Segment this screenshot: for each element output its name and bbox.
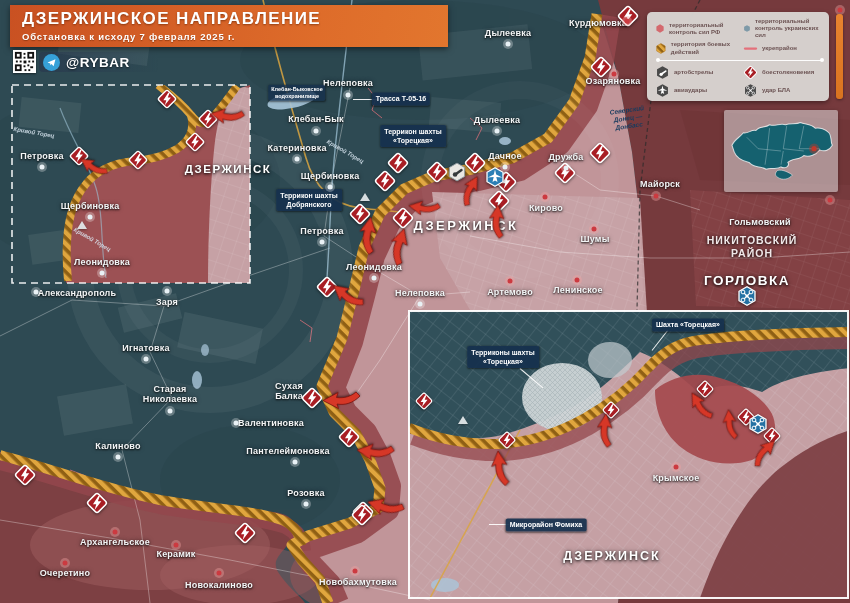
town-label: Петровка	[20, 151, 63, 161]
town-label: Сухая Балка	[275, 381, 303, 402]
artillery-icon	[447, 162, 468, 183]
water-label: Кривой Торец	[13, 126, 55, 140]
settlement-marker	[328, 185, 333, 190]
town-label: Дылеевка	[485, 28, 531, 38]
settlement-marker	[592, 227, 597, 232]
attack-arrow	[76, 152, 110, 182]
attack-arrow	[354, 440, 396, 463]
settlement-marker	[113, 530, 118, 535]
settlement-marker	[165, 289, 170, 294]
town-label: Старая Николаевка	[143, 384, 197, 405]
town-label: Александрополь	[38, 288, 117, 298]
spoil-tip-marker	[458, 416, 468, 424]
town-label: Петровка	[300, 226, 343, 236]
map-callout: Шахта «Торецкая»	[652, 318, 724, 331]
town-label: Калиново	[95, 441, 140, 451]
town-label: Дачное	[488, 151, 522, 161]
settlement-marker	[234, 421, 239, 426]
area-label: НИКИТОВСКИЙ РАЙОН	[707, 234, 798, 259]
page-subtitle: Обстановка к исходу 7 февраля 2025 г.	[22, 31, 436, 42]
spoil-tip-marker	[77, 221, 87, 229]
spoil-tip-marker	[360, 193, 370, 201]
town-label: Очеретино	[40, 568, 90, 578]
page-title: ДЗЕРЖИНСКОЕ НАПРАВЛЕНИЕ	[22, 9, 436, 29]
map-callout: Террикон шахты Добрянского	[276, 189, 342, 211]
settlement-marker	[838, 8, 843, 13]
town-label: Щербиновка	[61, 201, 120, 211]
attack-arrow	[747, 435, 782, 470]
water-label: Кривой Торец	[325, 139, 365, 166]
water-label: Северский Донец — Донбасс	[609, 104, 646, 132]
map-callout: Микрорайон Фомиха	[506, 518, 587, 531]
town-label: Нелеповка	[395, 288, 445, 298]
area-label: ДЗЕРЖИНСК	[185, 163, 272, 177]
legend-accent-strip	[836, 14, 843, 99]
settlement-marker	[168, 409, 173, 414]
settlement-marker	[217, 571, 222, 576]
town-label: Валентиновка	[238, 418, 304, 428]
clash-icon	[157, 89, 178, 110]
town-label: Дылеевка	[474, 115, 520, 125]
water-label: Кривой Торец	[72, 227, 112, 254]
uav-strike-icon	[747, 413, 769, 435]
town-label: Гольмовский	[729, 217, 790, 227]
qr-code	[13, 50, 36, 73]
settlement-marker	[346, 93, 351, 98]
fortified-line-icon	[743, 41, 758, 56]
town-label: Шумы	[580, 234, 609, 244]
settlement-marker	[495, 129, 500, 134]
settlement-marker	[564, 166, 569, 171]
town-label: Новобахмутовка	[319, 577, 397, 587]
settlement-marker	[40, 165, 45, 170]
channel-handle: @RYBAR	[66, 55, 130, 70]
callout-leader	[520, 368, 544, 388]
settlement-marker	[304, 502, 309, 507]
town-label: Катериновка	[267, 143, 326, 153]
clash-icon	[185, 132, 206, 153]
clash-icon	[234, 522, 257, 545]
settlement-marker	[144, 357, 149, 362]
map-callout: Террикон шахты «Торецкая»	[380, 125, 446, 147]
settlement-marker	[293, 460, 298, 465]
settlement-marker	[674, 465, 679, 470]
situation-map: НелеповкаКлебан-БыкКатериновкаЩербиновка…	[0, 0, 850, 603]
title-banner: ДЗЕРЖИНСКОЕ НАПРАВЛЕНИЕ Обстановка к исх…	[10, 5, 448, 47]
combat-zone-icon	[655, 41, 667, 56]
town-label: Майорск	[640, 179, 680, 189]
legend-item: авиаудары	[655, 82, 741, 100]
settlement-marker	[625, 19, 630, 24]
uav-strike-icon	[743, 83, 758, 98]
map-callout: Трасса Т-05-16	[372, 92, 430, 105]
settlement-marker	[654, 194, 659, 199]
settlement-marker	[828, 198, 833, 203]
legend-item: удар БЛА	[743, 82, 825, 100]
clash-icon	[128, 150, 149, 171]
attack-arrow	[327, 277, 367, 315]
town-label: Нелеповка	[323, 78, 373, 88]
settlement-marker	[174, 543, 179, 548]
uav-strike-icon	[736, 285, 758, 307]
ukraine-map	[724, 110, 838, 192]
legend-item: территориальный контроль украинских сил	[743, 18, 825, 40]
attack-arrow	[490, 448, 510, 487]
town-label: Артемово	[487, 287, 533, 297]
clash-icon	[14, 464, 37, 487]
town-label: Керамик	[156, 549, 195, 559]
settlement-marker	[418, 302, 423, 307]
town-label: Щербиновка	[301, 171, 360, 181]
town-label: Кирово	[529, 203, 563, 213]
clash-icon	[415, 392, 434, 411]
town-label: Клебан-Бык	[288, 114, 344, 124]
town-label: Новокалиново	[185, 580, 253, 590]
telegram-channel: @RYBAR	[39, 52, 158, 72]
legend-item: укрепрайон	[743, 40, 825, 58]
settlement-marker	[353, 569, 358, 574]
settlement-marker	[100, 271, 105, 276]
clash-icon	[374, 170, 397, 193]
clash-icon	[589, 142, 612, 165]
clash-icon	[617, 5, 640, 28]
settlement-marker	[63, 561, 68, 566]
legend-divider	[657, 60, 823, 61]
legend-item: территориальный контроль сил РФ	[655, 18, 741, 40]
location-marker	[811, 146, 816, 151]
clash-icon	[590, 56, 613, 79]
clash-icon	[498, 431, 517, 450]
airstrike-icon	[484, 166, 506, 188]
attack-arrow	[487, 202, 506, 239]
ukraine-locator-inset	[724, 110, 838, 192]
callout-leader	[652, 330, 669, 351]
settlement-marker	[314, 129, 319, 134]
settlement-marker	[116, 455, 121, 460]
settlement-marker	[34, 290, 39, 295]
telegram-icon	[43, 54, 60, 71]
town-label: Пантелеймоновка	[246, 446, 329, 456]
rf-control-icon	[655, 21, 665, 36]
clash-icon	[86, 492, 109, 515]
map-callout: Терриконы шахты «Торецкая»	[467, 346, 539, 368]
ukr-control-icon	[743, 21, 751, 36]
town-label: Архангельское	[80, 537, 150, 547]
town-label: Крымское	[653, 473, 700, 483]
settlement-marker	[88, 215, 93, 220]
clash-icon	[426, 161, 449, 184]
town-label: Леонидовка	[74, 257, 130, 267]
settlement-marker	[543, 195, 548, 200]
settlement-marker	[508, 279, 513, 284]
legend-item: артобстрелы	[655, 64, 741, 82]
attack-arrow	[721, 407, 738, 440]
legend-item: территория боевых действий	[655, 40, 741, 58]
town-label: Заря	[156, 297, 178, 307]
airstrike-icon	[655, 83, 670, 98]
attack-arrow	[321, 391, 361, 409]
town-label: Игнатовка	[122, 343, 169, 353]
settlement-marker	[295, 157, 300, 162]
settlement-marker	[503, 165, 508, 170]
settlement-marker	[612, 72, 617, 77]
town-label: Ленинское	[553, 285, 602, 295]
artillery-icon	[655, 65, 670, 80]
area-label: ДЗЕРЖИНСК	[563, 549, 660, 564]
legend-item: боестолкновения	[743, 64, 825, 82]
settlement-marker	[506, 42, 511, 47]
legend: территориальный контроль сил РФ территор…	[647, 12, 829, 101]
town-label: Розовка	[287, 488, 324, 498]
attack-arrow	[595, 411, 614, 448]
settlement-marker	[372, 276, 377, 281]
attack-arrow	[384, 224, 413, 268]
map-callout: Клебан-Быковское водохранилище	[268, 85, 325, 101]
settlement-marker	[575, 278, 580, 283]
settlement-marker	[320, 240, 325, 245]
clash-icon	[743, 65, 758, 80]
